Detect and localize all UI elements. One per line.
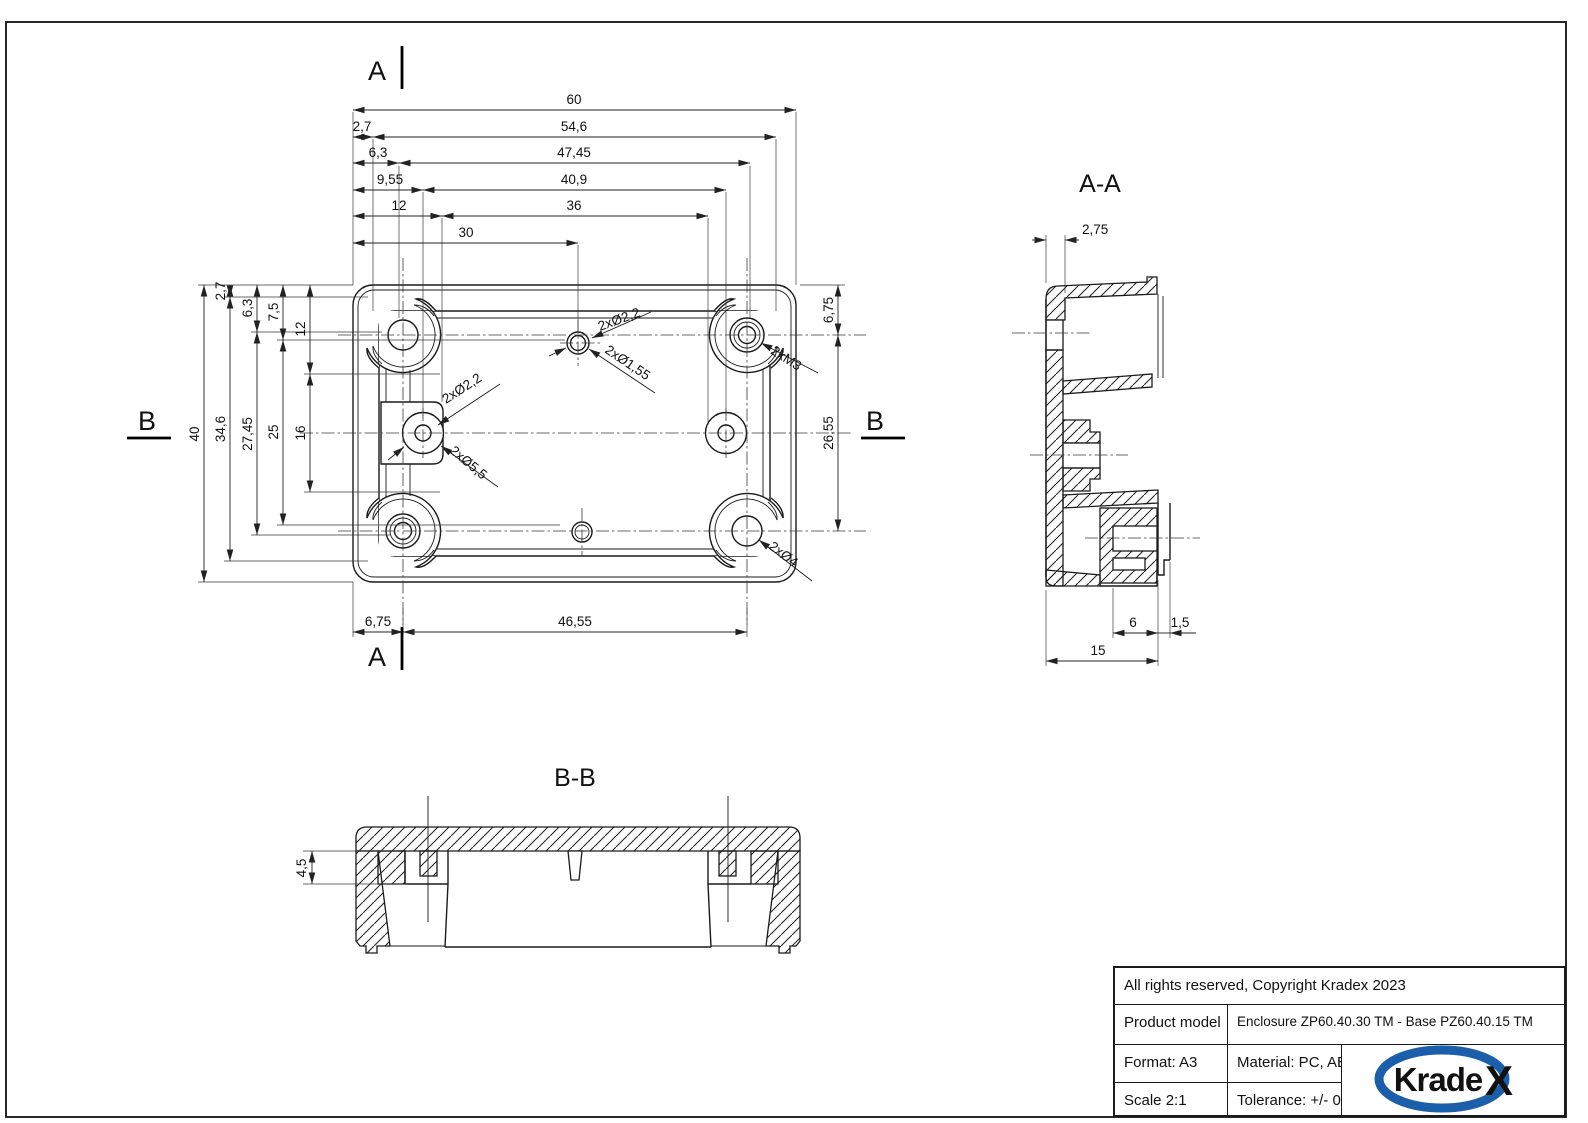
product-model-label: Product model (1124, 1014, 1221, 1031)
dim-40: 40 (187, 426, 202, 441)
dim-6-75-right: 6,75 (821, 297, 836, 323)
copyright-row: All rights reserved, Copyright Kradex 20… (1115, 968, 1564, 1005)
dim-1-5: 1,5 (1171, 615, 1190, 630)
dim-6: 6 (1129, 615, 1137, 630)
dim-40-9: 40,9 (561, 172, 587, 187)
dim-4-5: 4,5 (294, 859, 309, 878)
title-block: All rights reserved, Copyright Kradex 20… (1113, 966, 1566, 1117)
dim-12-left: 12 (293, 321, 308, 336)
dim-6-75-bottom: 6,75 (365, 614, 391, 629)
product-model-value: Enclosure ZP60.40.30 TM - Base PZ60.40.1… (1237, 1014, 1533, 1029)
scale-text: Scale 2:1 (1124, 1092, 1187, 1109)
product-model-label-cell: Product model (1115, 1005, 1228, 1045)
format-text: Format: A3 (1124, 1054, 1197, 1071)
product-model-value-cell: Enclosure ZP60.40.30 TM - Base PZ60.40.1… (1228, 1005, 1564, 1045)
dim-36: 36 (566, 198, 581, 213)
dim-26-55: 26,55 (821, 416, 836, 450)
format-cell: Format: A3 (1115, 1045, 1228, 1083)
ann-boss-outer: 2xØ5,5 (447, 443, 490, 482)
material-text: Material: PC, ABS (1237, 1054, 1342, 1071)
dim-25: 25 (266, 424, 281, 439)
dim-12-top: 12 (391, 198, 406, 213)
dim-16: 16 (293, 425, 308, 440)
section-bb: B-B 4,5 (294, 764, 800, 953)
dim-27-45: 27,45 (240, 417, 255, 451)
marker-b-left: B (138, 406, 156, 436)
scale-cell: Scale 2:1 (1115, 1083, 1228, 1115)
extension-lines (198, 112, 845, 637)
marker-a-top: A (368, 56, 386, 86)
dim-34-6: 34,6 (213, 416, 228, 442)
section-aa-title: A-A (1079, 170, 1121, 198)
top-view: 60 2,7 54,6 6,3 47,45 9,55 40,9 12 36 30… (127, 46, 905, 672)
dim-9-55: 9,55 (377, 172, 403, 187)
dim-46-55: 46,55 (558, 614, 592, 629)
copyright-text: All rights reserved, Copyright Kradex 20… (1124, 977, 1406, 994)
marker-b-right: B (866, 406, 884, 436)
tolerance-text: Tolerance: +/- 0.5 (1237, 1092, 1342, 1109)
ann-insert: 2xM3 (768, 343, 804, 374)
logo-krade-text: Krade (1394, 1061, 1483, 1098)
ann-boss-hole: 2xØ2,2 (439, 370, 484, 406)
dim-60: 60 (566, 92, 581, 107)
dim-2-7-left: 2,7 (213, 282, 228, 301)
section-bb-title: B-B (554, 764, 596, 792)
ann-hole-small-outer: 2xØ2,2 (596, 305, 642, 334)
marker-a-bottom: A (368, 642, 386, 672)
material-cell: Material: PC, ABS (1228, 1045, 1342, 1083)
dim-54-6: 54,6 (561, 119, 587, 134)
drawing-page: { "colors": { "line": "#1a1a1a", "logo_b… (0, 0, 1588, 1123)
dim-6-3-top: 6,3 (369, 145, 388, 160)
dim-2-75: 2,75 (1082, 222, 1108, 237)
dim-7-5: 7,5 (266, 303, 281, 322)
dim-2-7-top: 2,7 (353, 119, 372, 134)
logo-x-text: X (1485, 1057, 1513, 1104)
dim-6-3-left: 6,3 (240, 299, 255, 318)
kradex-logo: Krade X (1342, 1043, 1564, 1115)
dim-47-45: 47,45 (557, 145, 591, 160)
tolerance-cell: Tolerance: +/- 0.5 (1228, 1083, 1342, 1115)
dim-15: 15 (1090, 643, 1105, 658)
dim-30: 30 (458, 225, 473, 240)
drawing-canvas: 60 2,7 54,6 6,3 47,45 9,55 40,9 12 36 30… (0, 0, 1588, 1123)
section-aa: A-A 2,75 6 1,5 15 (1012, 170, 1200, 666)
